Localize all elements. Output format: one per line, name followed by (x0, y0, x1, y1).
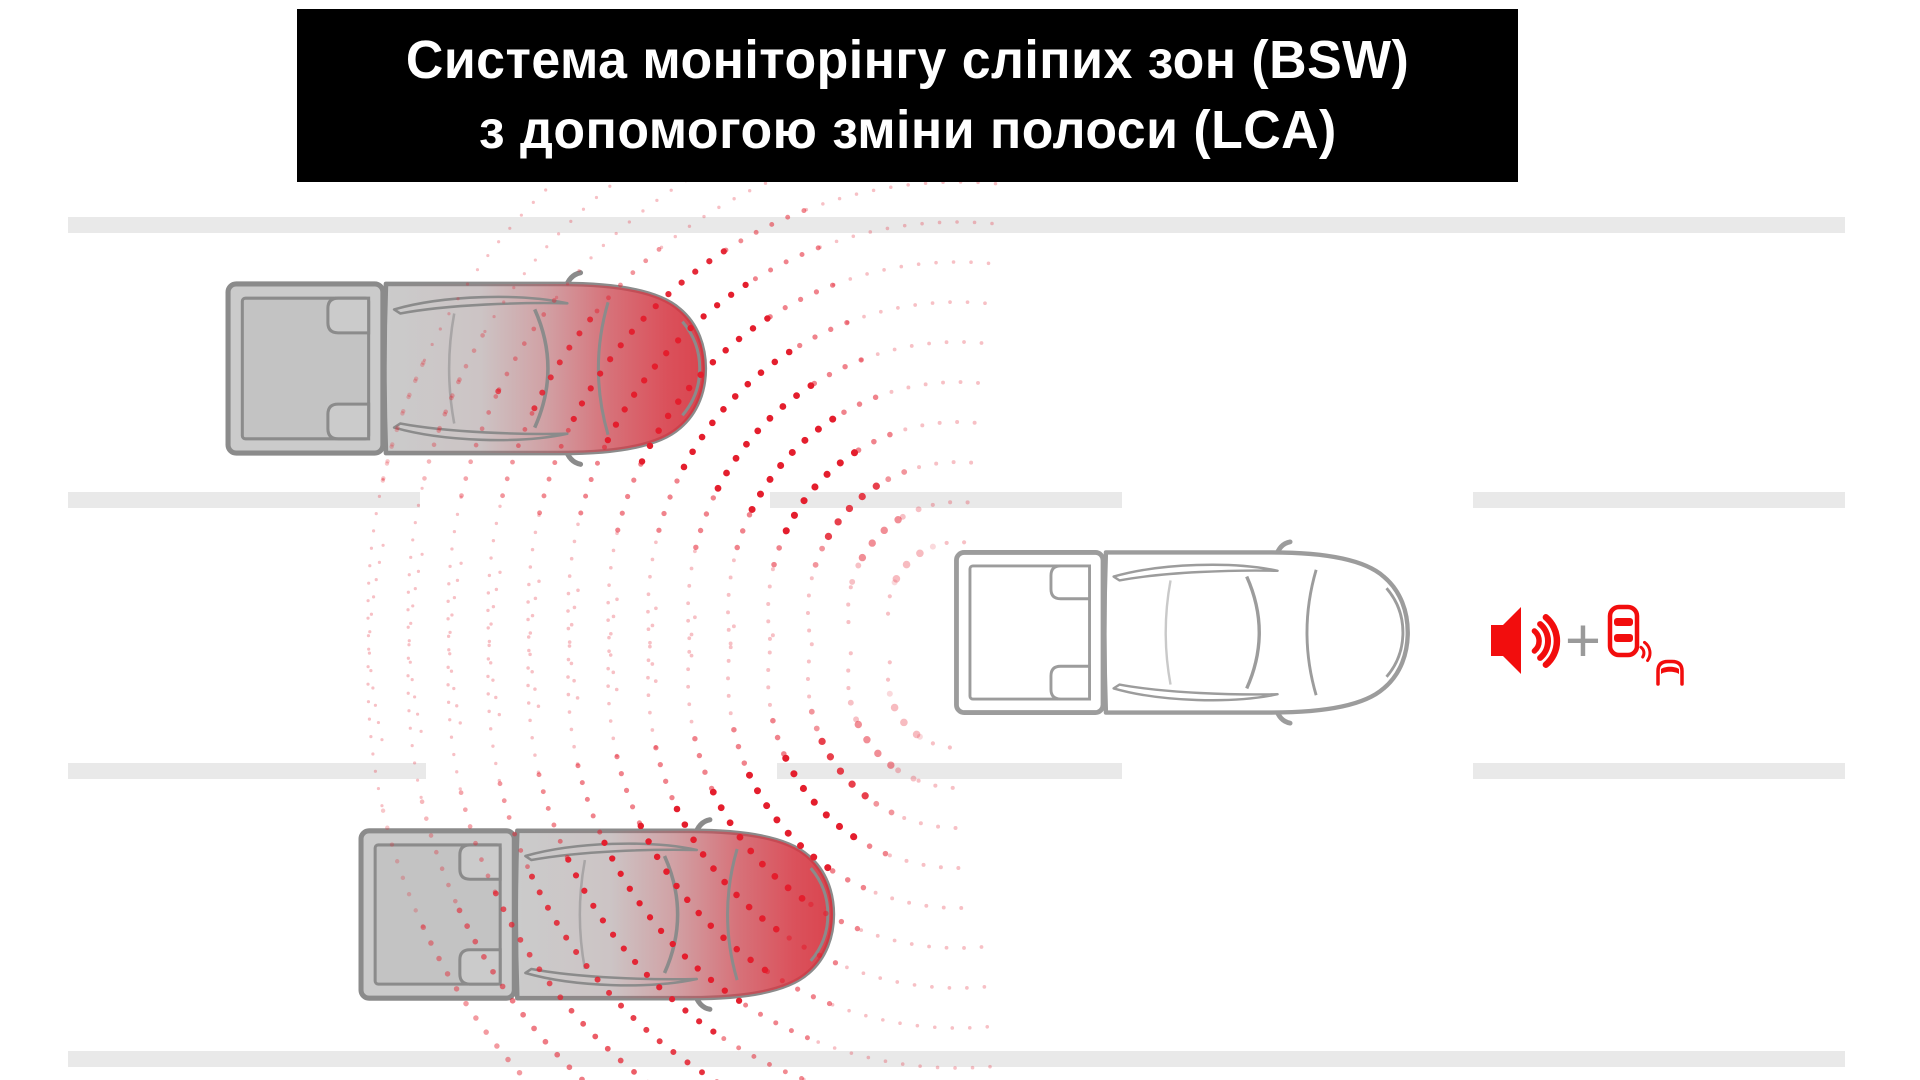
warning-legend: + (1491, 607, 1682, 685)
radar-arc (608, 599, 617, 756)
radar-arc (888, 662, 890, 693)
radar-arc (448, 497, 461, 726)
radar-arc (768, 635, 773, 720)
truck-middle-subject (956, 542, 1407, 723)
radar-arc (768, 569, 773, 654)
radar-arc (656, 481, 677, 542)
radar-arc (876, 804, 904, 818)
radar-arc (695, 739, 713, 792)
radar-arc (728, 560, 734, 663)
radar-arc (713, 386, 811, 498)
radar-arc (833, 397, 876, 419)
radar-arc (847, 302, 985, 323)
radar-arc (876, 472, 904, 486)
radar-arc (833, 871, 876, 893)
lane-marking (770, 492, 1122, 508)
radar-arc (488, 572, 500, 783)
radar-arc (608, 533, 617, 690)
lane-marking (777, 763, 1122, 779)
radar-arc (688, 617, 695, 738)
truck-top-left (228, 273, 705, 465)
radar-arc (888, 596, 890, 627)
lane-marking (68, 763, 426, 779)
radar-arc (767, 285, 832, 318)
radar-arc (812, 712, 822, 742)
radar-arc (876, 893, 978, 908)
radar-arc (848, 653, 851, 702)
radar-arc (851, 566, 859, 588)
lane-marking (1473, 492, 1845, 508)
radar-arc (734, 730, 750, 776)
radar-arc (920, 737, 933, 744)
radar-arc (848, 587, 851, 636)
radar-arc (861, 930, 981, 948)
lane-marking (68, 1051, 1845, 1067)
radar-arc (617, 757, 641, 826)
radar-arc (861, 342, 981, 360)
radar-arc (904, 818, 971, 828)
radar-arc (746, 248, 819, 285)
radar-arc (933, 542, 964, 547)
radar-arc (895, 553, 920, 582)
radar-arc (890, 855, 975, 868)
radar-arc (528, 515, 539, 708)
radar-arc (408, 488, 422, 735)
radar-arc (895, 708, 920, 737)
radar-arc (448, 563, 461, 792)
radar-arc (847, 967, 985, 988)
bsw-indicator-icon (1610, 607, 1682, 684)
radar-arc (568, 590, 578, 765)
radar-arc (811, 360, 861, 386)
radar-arc (833, 1005, 989, 1028)
radar-arc (488, 506, 500, 717)
speaker-icon (1491, 607, 1557, 674)
radar-arc (568, 524, 578, 699)
radar-arc (876, 382, 978, 397)
lane-marking (68, 492, 420, 508)
radar-arc (789, 323, 847, 352)
radar-arc (746, 1005, 819, 1042)
title-banner: Система моніторінгу сліпих зон (BSW) з д… (297, 9, 1518, 182)
radar-arc (656, 748, 677, 809)
plus-sign: + (1565, 607, 1601, 676)
radar-arc (773, 721, 786, 759)
radar-arc (904, 462, 971, 472)
radar-arc (702, 1072, 790, 1080)
radar-arc (833, 262, 989, 285)
radar-arc (728, 626, 734, 729)
radar-arc (368, 479, 383, 744)
radar-arc (688, 551, 695, 672)
radar-arc (858, 520, 898, 566)
bsw-infographic: + Система моніторінгу сліпих зон (BSW) з… (0, 0, 1920, 1080)
lane-marking (68, 217, 1845, 233)
radar-arc (808, 644, 812, 711)
radar-arc (773, 532, 786, 570)
radar-arc (890, 422, 975, 435)
radar-arc (933, 743, 964, 748)
radar-arc (855, 435, 890, 453)
radar-arc (804, 182, 996, 211)
radar-arc (808, 578, 812, 645)
radar-arc (812, 549, 822, 579)
title-line-1: Система моніторінгу сліпих зон (BSW) (406, 31, 1409, 90)
radar-arc (695, 498, 713, 551)
title-line-2: з допомогою зміни полоси (LCA) (479, 101, 1337, 160)
lane-marking (1473, 763, 1845, 779)
radar-arc (734, 515, 750, 561)
radar-arc (890, 582, 895, 596)
radar-arc (617, 464, 641, 533)
radar-arc (855, 837, 890, 855)
radar-arc (919, 781, 968, 788)
radar-arc (528, 581, 539, 774)
radar-arc (578, 447, 605, 524)
